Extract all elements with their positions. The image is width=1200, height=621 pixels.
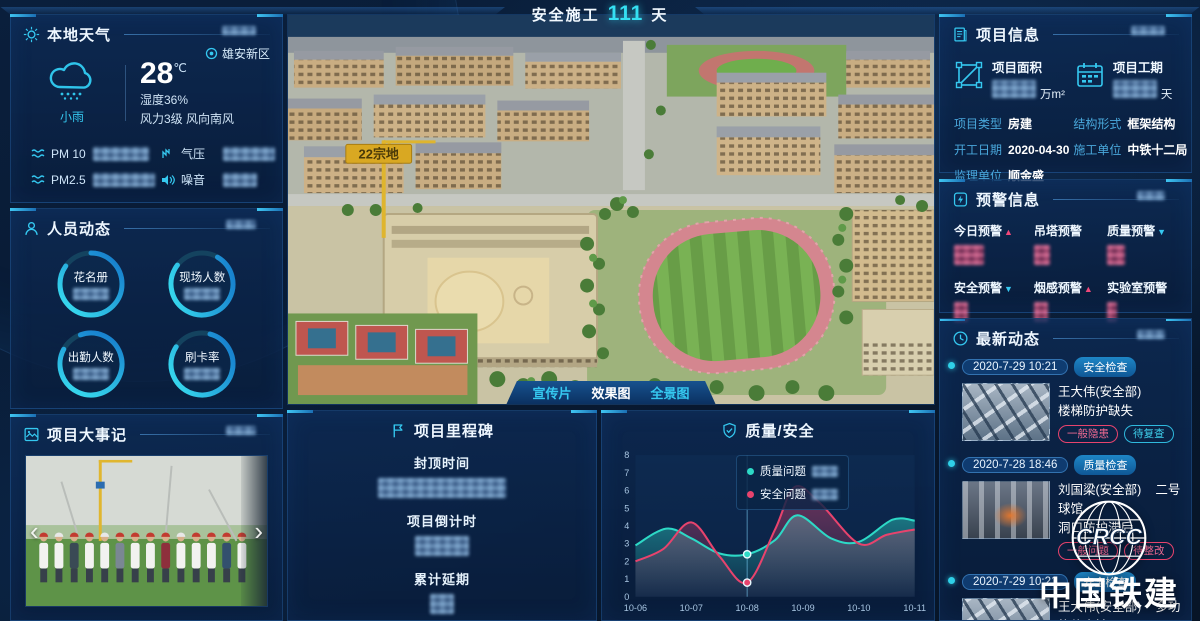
calendar-icon bbox=[1075, 60, 1105, 90]
blurred-count bbox=[73, 288, 109, 300]
warning-smoke: 烟感预警▲ bbox=[1034, 279, 1101, 322]
panel-project-info: 项目信息 项目面积 万m² bbox=[939, 14, 1192, 173]
project-info-rule bbox=[1053, 34, 1179, 35]
blurred-text bbox=[226, 426, 256, 435]
rain-cloud-icon bbox=[46, 61, 98, 101]
milestone-delay: 累计延期 bbox=[414, 569, 470, 614]
news-date-badge: 2020-7-28 18:46 bbox=[962, 457, 1068, 473]
speaker-icon bbox=[161, 174, 175, 186]
tag-hazard-level: 一般隐患 bbox=[1058, 425, 1118, 443]
panel-quality-safety: 质量/安全 01234567810-0610-0710-0810-0910-10… bbox=[601, 410, 935, 621]
milestone-label: 封顶时间 bbox=[378, 453, 506, 472]
news-entry[interactable]: 2020-7-29 10:21 安全检查 王大伟(安全部) 楼梯防护缺失 一般隐… bbox=[950, 357, 1183, 455]
svg-text:10-08: 10-08 bbox=[736, 603, 759, 613]
svg-text:10-06: 10-06 bbox=[624, 603, 647, 613]
milestone-label: 累计延期 bbox=[414, 569, 470, 588]
svg-text:8: 8 bbox=[624, 450, 629, 460]
metric-label: 噪音 bbox=[181, 171, 217, 188]
metric-pressure: 气压 bbox=[161, 145, 275, 162]
personnel-title-rule bbox=[124, 228, 270, 229]
warning-quality: 质量预警▼ bbox=[1107, 222, 1181, 265]
news-thumbnail[interactable] bbox=[962, 383, 1050, 441]
ring-roster: 花名册 bbox=[56, 249, 126, 319]
news-title-rule bbox=[1053, 338, 1179, 339]
ring-label: 花名册 bbox=[74, 269, 109, 285]
trend-down-icon: ▼ bbox=[1157, 227, 1166, 237]
blurred-text bbox=[222, 26, 256, 35]
blurred-date bbox=[378, 478, 506, 498]
news-date-badge: 2020-7-29 10:21 bbox=[962, 359, 1068, 375]
warnings-title: 预警信息 bbox=[976, 189, 1040, 210]
weather-title-rule bbox=[124, 34, 270, 35]
quality-title: 质量/安全 bbox=[745, 420, 814, 441]
blurred-count bbox=[1034, 245, 1050, 265]
milestone-topping-date: 封顶时间 bbox=[378, 453, 506, 498]
safe-days-label: 安全施工 bbox=[532, 4, 600, 25]
field-contractor: 施工单位中铁十二局 bbox=[1073, 141, 1187, 158]
ring-label: 出勤人数 bbox=[68, 349, 114, 365]
panel-warnings: 预警信息 今日预警▲ 吊塔预警 质量预警▼ 安全预警▼ 烟感预警▲ bbox=[939, 179, 1192, 313]
blurred-value bbox=[812, 466, 838, 477]
panel-project-events: 项目大事记 ‹ › bbox=[10, 414, 283, 621]
blurred-count bbox=[184, 368, 220, 380]
field-project-type: 项目类型房建 bbox=[954, 115, 1069, 132]
news-person: 王大伟(安全部) bbox=[1058, 385, 1141, 399]
legend-safety: 安全问题 bbox=[747, 486, 838, 502]
news-category-badge: 安全检查 bbox=[1074, 357, 1136, 377]
ring-label: 刷卡率 bbox=[185, 349, 220, 365]
crcc-acronym: CRCC bbox=[1076, 524, 1143, 550]
milestone-countdown: 项目倒计时 bbox=[407, 511, 477, 556]
ring-card-rate: 刷卡率 bbox=[167, 329, 237, 399]
events-title-rule bbox=[140, 434, 270, 435]
field-start-date: 开工日期2020-04-30 bbox=[954, 141, 1069, 158]
blurred-value bbox=[93, 173, 155, 187]
panel-milestone: 项目里程碑 封顶时间 项目倒计时 累计延期 bbox=[287, 410, 597, 621]
svg-text:10-10: 10-10 bbox=[847, 603, 870, 613]
stat-label: 项目面积 bbox=[992, 57, 1065, 76]
safe-days-value: 111 bbox=[608, 2, 644, 26]
svg-text:4: 4 bbox=[624, 521, 629, 531]
land-plot-label: 22宗地 bbox=[359, 146, 399, 161]
news-issue: 楼梯防护缺失 bbox=[1058, 402, 1174, 421]
stat-project-duration: 项目工期 天 bbox=[1075, 57, 1179, 102]
blurred-duration bbox=[1113, 80, 1157, 98]
warning-safety: 安全预警▼ bbox=[954, 279, 1028, 322]
gym-building bbox=[852, 210, 934, 375]
stat-unit: 万m² bbox=[1040, 86, 1065, 102]
svg-text:5: 5 bbox=[624, 503, 629, 513]
sun-icon bbox=[23, 26, 40, 43]
aerial-render-image: 22宗地 bbox=[288, 15, 934, 404]
blurred-text bbox=[1137, 330, 1165, 339]
divider bbox=[125, 65, 126, 121]
chart-legend: 质量问题 安全问题 bbox=[736, 455, 849, 510]
panel-personnel: 人员动态 花名册 现场人数 出勤人数 刷卡率 bbox=[10, 208, 283, 409]
metric-label: PM 10 bbox=[51, 147, 87, 161]
header-deco-right bbox=[694, 7, 1200, 15]
trend-up-icon: ▲ bbox=[1004, 227, 1013, 237]
person-icon bbox=[23, 220, 40, 237]
ring-onsite: 现场人数 bbox=[167, 249, 237, 319]
air-wave-icon bbox=[31, 174, 45, 185]
news-title: 最新动态 bbox=[976, 328, 1040, 349]
svg-text:10-07: 10-07 bbox=[680, 603, 703, 613]
render-view-tabs: 宣传片 效果图 全景图 bbox=[506, 381, 715, 404]
region-badge: 雄安新区 bbox=[205, 45, 270, 62]
milestone-label: 项目倒计时 bbox=[407, 511, 477, 530]
carousel-prev-button[interactable]: ‹ bbox=[30, 518, 39, 544]
field-structure: 结构形式框架结构 bbox=[1073, 115, 1187, 132]
group-photo-image bbox=[26, 456, 267, 606]
gauge-icon bbox=[161, 148, 175, 159]
shield-check-icon bbox=[721, 422, 738, 439]
blurred-delay bbox=[430, 594, 454, 614]
tab-render-view[interactable]: 效果图 bbox=[591, 383, 630, 402]
svg-text:10-11: 10-11 bbox=[903, 603, 926, 613]
tag-status: 待复查 bbox=[1124, 425, 1174, 443]
photo-album-icon bbox=[23, 426, 40, 443]
legend-quality: 质量问题 bbox=[747, 463, 838, 479]
legend-label: 安全问题 bbox=[760, 486, 806, 502]
news-category-badge: 质量检查 bbox=[1074, 455, 1136, 475]
blurred-value bbox=[93, 147, 149, 161]
svg-text:7: 7 bbox=[624, 468, 629, 478]
sports-courts bbox=[288, 313, 477, 404]
warning-lab: 实验室预警 bbox=[1107, 279, 1181, 322]
legend-label: 质量问题 bbox=[760, 463, 806, 479]
svg-text:10-09: 10-09 bbox=[791, 603, 814, 613]
main-render-viewport: 22宗地 宣传片 效果图 全景图 bbox=[287, 14, 935, 405]
tab-panorama[interactable]: 全景图 bbox=[651, 383, 690, 402]
legend-dot-quality bbox=[747, 468, 754, 475]
blurred-value bbox=[812, 489, 838, 500]
flag-icon bbox=[390, 422, 407, 439]
page-header: 安全施工 111 天 bbox=[0, 0, 1200, 27]
svg-text:1: 1 bbox=[624, 574, 629, 584]
blurred-area bbox=[992, 80, 1036, 98]
ring-attendance: 出勤人数 bbox=[56, 329, 126, 399]
land-plot-sign: 22宗地 bbox=[346, 144, 412, 163]
warnings-title-rule bbox=[1053, 199, 1179, 200]
svg-text:0: 0 bbox=[624, 592, 629, 602]
blurred-text bbox=[1131, 26, 1165, 35]
carousel-next-button[interactable]: › bbox=[254, 518, 263, 544]
legend-dot-safety bbox=[747, 491, 754, 498]
warning-crane: 吊塔预警 bbox=[1034, 222, 1101, 265]
wind-text: 风力3级 风向南风 bbox=[140, 110, 234, 129]
blurred-text bbox=[226, 220, 256, 229]
metric-pm25: PM2.5 bbox=[31, 171, 155, 188]
weather-condition: 小雨 bbox=[33, 108, 111, 125]
trend-up-icon: ▲ bbox=[1084, 284, 1093, 294]
region-label: 雄安新区 bbox=[222, 45, 270, 62]
temperature-value: 28 bbox=[140, 57, 173, 90]
blurred-count bbox=[73, 368, 109, 380]
svg-text:2: 2 bbox=[624, 556, 629, 566]
blurred-countdown bbox=[415, 536, 469, 556]
svg-text:3: 3 bbox=[624, 539, 629, 549]
location-icon bbox=[205, 47, 218, 60]
trend-down-icon: ▼ bbox=[1004, 284, 1013, 294]
personnel-title: 人员动态 bbox=[47, 218, 111, 239]
humidity-text: 湿度36% bbox=[140, 91, 234, 110]
timeline-dot bbox=[948, 577, 955, 584]
project-info-title: 项目信息 bbox=[976, 24, 1040, 45]
metric-label: PM2.5 bbox=[51, 173, 87, 187]
ring-label: 现场人数 bbox=[179, 269, 225, 285]
stat-project-area: 项目面积 万m² bbox=[954, 57, 1065, 102]
metric-label: 气压 bbox=[181, 145, 217, 162]
events-photo[interactable]: ‹ › bbox=[25, 455, 268, 607]
stat-unit: 天 bbox=[1161, 86, 1173, 102]
warning-today: 今日预警▲ bbox=[954, 222, 1028, 265]
alert-bolt-icon bbox=[952, 191, 969, 208]
area-icon bbox=[954, 60, 984, 90]
safe-days-unit: 天 bbox=[651, 4, 668, 25]
blurred-value bbox=[223, 173, 257, 187]
air-wave-icon bbox=[31, 148, 45, 159]
weather-title: 本地天气 bbox=[47, 24, 111, 45]
blurred-text bbox=[1137, 191, 1165, 200]
metric-pm10: PM 10 bbox=[31, 145, 155, 162]
clock-icon bbox=[952, 330, 969, 347]
timeline-dot bbox=[948, 362, 955, 369]
document-icon bbox=[952, 26, 969, 43]
dashboard-root: 安全施工 111 天 bbox=[0, 0, 1200, 621]
header-deco-left bbox=[0, 7, 506, 15]
blurred-value bbox=[223, 147, 275, 161]
blurred-count bbox=[954, 245, 984, 265]
temperature-unit: ℃ bbox=[173, 61, 186, 75]
timeline-dot bbox=[948, 460, 955, 467]
crcc-name: 中国铁建 bbox=[1024, 567, 1194, 615]
events-title: 项目大事记 bbox=[47, 424, 127, 445]
milestone-title: 项目里程碑 bbox=[414, 420, 494, 441]
blurred-count bbox=[1107, 245, 1125, 265]
stat-label: 项目工期 bbox=[1113, 57, 1173, 76]
panel-local-weather: 本地天气 雄安新区 小雨 28℃ 湿度36% 风力3级 风向南风 bbox=[10, 14, 283, 203]
blurred-count bbox=[184, 288, 220, 300]
svg-text:6: 6 bbox=[624, 486, 629, 496]
tab-promo-video[interactable]: 宣传片 bbox=[532, 383, 571, 402]
crcc-logo: CRCC 中国铁建 bbox=[1024, 495, 1194, 615]
metric-noise: 噪音 bbox=[161, 171, 275, 188]
